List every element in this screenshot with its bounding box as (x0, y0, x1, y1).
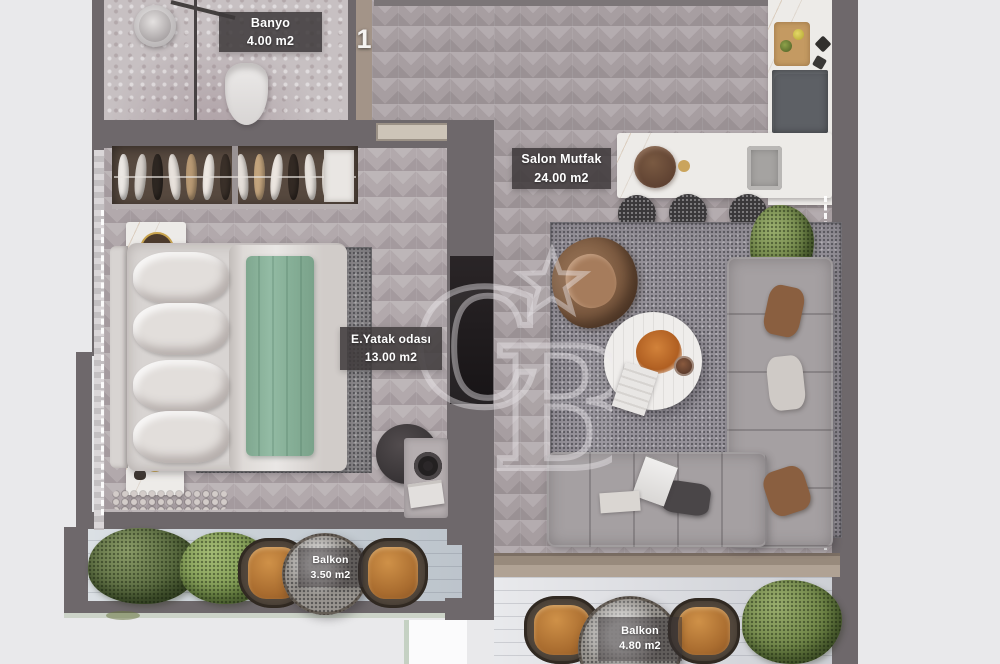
door-jamb (356, 0, 372, 122)
room-label-balkon-bottom: Balkon 4.80 m2 (598, 617, 682, 661)
magazine-stack (407, 480, 444, 508)
wall-left-lower (76, 352, 92, 527)
room-name: Banyo (251, 14, 290, 32)
room-area: 3.50 m2 (311, 568, 351, 583)
floorplan-canvas: C B Banyo 4.00 m2 Salon Mutfak 24.00 m2 … (0, 0, 1000, 664)
booklet (599, 491, 640, 514)
wall-bathroom-right (348, 0, 356, 122)
wardrobe-shelf (324, 150, 354, 202)
shower-head-icon (134, 5, 176, 47)
bed-runner-green (246, 256, 314, 456)
room-name: E.Yatak odası (351, 331, 431, 348)
watermark-letter-b: B (492, 310, 612, 475)
cooktop (772, 70, 828, 133)
room-label-balkon-top: Balkon 3.50 m2 (298, 548, 363, 587)
bed-pillow-2 (133, 303, 229, 355)
chair-cushion (368, 547, 418, 599)
cocoa-bowl (674, 356, 694, 376)
kitchen-sink (747, 146, 782, 190)
room-label-yatak-odasi: E.Yatak odası 13.00 m2 (340, 327, 442, 370)
bed-pillow-1 (133, 252, 229, 304)
sofa-pillow-white (765, 354, 806, 411)
room-area: 13.00 m2 (365, 349, 417, 366)
lemon (793, 29, 804, 40)
neighbor-balcony-patch (404, 620, 467, 664)
bed-foot-runner (112, 490, 228, 510)
balcony-sprig (106, 611, 140, 620)
bed-headboard (110, 246, 128, 468)
serving-tray (634, 146, 676, 188)
balcony-plant-3 (742, 580, 842, 664)
balcony-top-chair-2 (358, 538, 428, 608)
bed-pillow-4 (133, 411, 229, 463)
room-area: 4.80 m2 (619, 639, 661, 654)
room-name: Salon Mutfak (521, 150, 601, 168)
room-area: 4.00 m2 (247, 32, 294, 50)
bedroom-window-dash (101, 210, 104, 515)
hallway-floor (372, 0, 494, 133)
room-area: 24.00 m2 (534, 169, 588, 187)
room-label-banyo: Banyo 4.00 m2 (219, 12, 322, 52)
gold-cup (678, 160, 690, 172)
room-name: Balkon (312, 553, 348, 568)
shower-glass-divider (194, 0, 197, 120)
unit-number: 1 (356, 26, 372, 53)
wardrobe-rail (114, 176, 356, 178)
wall-top (374, 0, 768, 6)
avocado (780, 40, 792, 52)
cb-watermark: C B (412, 240, 612, 475)
room-label-salon-mutfak: Salon Mutfak 24.00 m2 (512, 148, 611, 189)
wall-balcony-center-step (445, 598, 494, 620)
bed-pillow-3 (133, 360, 229, 412)
nightstand-dark-item (134, 470, 146, 480)
sliding-door-track (494, 553, 840, 577)
wardrobe-front-rail (112, 204, 358, 209)
chair-cushion (678, 607, 730, 655)
room-name: Balkon (621, 624, 659, 639)
